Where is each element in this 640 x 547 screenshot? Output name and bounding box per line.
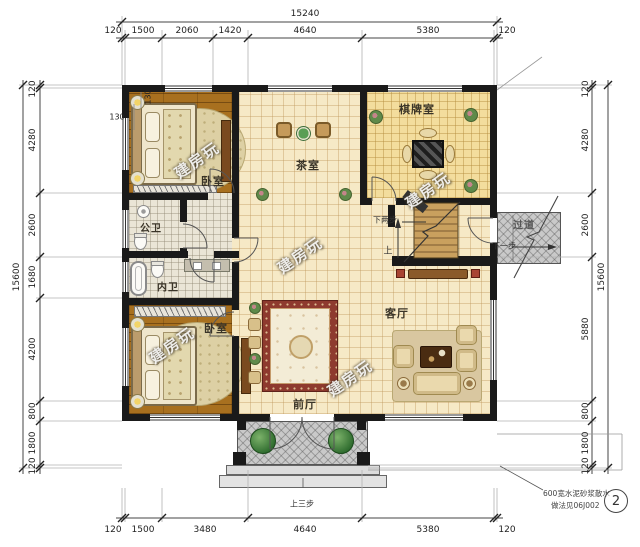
bathtub-inner xyxy=(135,266,142,291)
nightstand-lamp xyxy=(130,394,145,409)
label-tea-room: 茶室 xyxy=(296,157,320,173)
dim-left-seg: 1680 xyxy=(28,266,38,289)
hall-stool xyxy=(248,336,261,349)
dim-top-seg: 2060 xyxy=(176,26,199,36)
dim-right-seg: 2600 xyxy=(581,214,591,237)
toilet-tank xyxy=(151,261,164,266)
label-bedroom1: 卧室 xyxy=(201,173,225,189)
armchair xyxy=(393,345,414,368)
dim-right-seg: 4280 xyxy=(581,129,591,152)
vanity-sink xyxy=(193,262,202,270)
hall-stool xyxy=(248,371,261,384)
armchair xyxy=(456,325,477,345)
dim-top-seg: 1420 xyxy=(219,26,242,36)
pillow xyxy=(145,148,160,178)
porch-step-1 xyxy=(226,465,380,475)
dim-bottom-seg: 120 xyxy=(104,525,121,535)
dim-right-seg: 120 xyxy=(581,457,591,474)
hall-stool xyxy=(248,318,261,331)
game-room-chair xyxy=(419,128,437,138)
dim-left-seg: 1800 xyxy=(28,432,38,455)
tea-room-chair xyxy=(276,122,292,138)
dim-top-seg: 120 xyxy=(104,26,121,36)
bedroom2-closet xyxy=(134,306,226,317)
porch-step-2 xyxy=(219,475,387,488)
label-public-bath: 公卫 xyxy=(140,220,162,235)
dim-right-seg: 5880 xyxy=(581,318,591,341)
public-bath-sink xyxy=(137,205,150,218)
label-up: 上 xyxy=(383,244,392,257)
potted-plant xyxy=(256,188,269,201)
label-bedroom2: 卧室 xyxy=(204,320,228,336)
tea-room-chair xyxy=(315,122,331,138)
pillow xyxy=(145,370,160,400)
ensuite-bathtub xyxy=(130,261,147,296)
detail-reference-bubble: 2 xyxy=(604,489,628,513)
rug-medallion xyxy=(289,335,313,359)
potted-plant xyxy=(249,302,261,314)
label-living-room: 客厅 xyxy=(385,305,409,321)
stair-console-table xyxy=(408,269,468,279)
dim-bottom-seg: 3480 xyxy=(194,525,217,535)
nightstand-lamp xyxy=(130,171,145,186)
nightstand-lamp xyxy=(130,317,145,332)
coffee-table xyxy=(420,346,452,368)
dim-bottom-seg: 4640 xyxy=(294,525,317,535)
label-down-one-step: 下一步 xyxy=(492,241,516,252)
game-room-table xyxy=(412,140,444,168)
public-bath-toilet xyxy=(134,233,147,250)
label-game-room: 棋牌室 xyxy=(399,101,435,117)
dim-top-seg: 4640 xyxy=(294,26,317,36)
dim-top-seg: 5380 xyxy=(417,26,440,36)
armchair xyxy=(456,349,477,372)
dim-top-total: 15240 xyxy=(291,9,320,19)
label-corridor: 过道 xyxy=(513,217,535,232)
potted-plant xyxy=(464,108,478,122)
dim-left-seg: 4280 xyxy=(28,129,38,152)
porch-bush xyxy=(328,428,354,454)
dim-top-seg: 1500 xyxy=(132,26,155,36)
dim-bottom-seg: 120 xyxy=(498,525,515,535)
ensuite-vanity xyxy=(184,259,230,272)
front-hall-rug xyxy=(262,300,338,392)
dim-top-seg: 120 xyxy=(498,26,515,36)
potted-plant xyxy=(464,179,478,193)
side-table xyxy=(397,377,410,390)
note-apron-spec: 600宽水泥砂浆散水 xyxy=(543,488,610,499)
sofa xyxy=(413,372,461,395)
label-front-hall: 前厅 xyxy=(293,396,317,412)
dim-bottom-seg: 1500 xyxy=(132,525,155,535)
potted-plant xyxy=(369,110,383,124)
dim-right-seg: 120 xyxy=(581,80,591,97)
label-up-three-steps: 上三步 xyxy=(290,499,314,510)
dim-right-total: 15600 xyxy=(597,263,607,292)
red-stool xyxy=(396,269,405,278)
dim-right-seg: 1800 xyxy=(581,432,591,455)
dim-offset-130-v: 130 xyxy=(144,89,153,104)
potted-plant xyxy=(249,353,261,365)
dim-left-seg: 120 xyxy=(28,80,38,97)
dim-left-seg: 800 xyxy=(28,402,38,419)
label-ensuite-bath: 内卫 xyxy=(157,279,179,294)
ensuite-toilet xyxy=(151,261,164,278)
dim-right-seg: 800 xyxy=(581,402,591,419)
potted-plant xyxy=(339,188,352,201)
pillow xyxy=(145,112,160,142)
dim-left-seg: 2600 xyxy=(28,214,38,237)
dim-bottom-seg: 5380 xyxy=(417,525,440,535)
game-room-chair xyxy=(402,145,412,163)
red-stool xyxy=(471,269,480,278)
vanity-sink xyxy=(212,262,221,270)
tea-room-table xyxy=(296,126,311,141)
game-room-chair xyxy=(445,145,455,163)
dim-left-seg: 120 xyxy=(28,457,38,474)
dim-left-total: 15600 xyxy=(12,263,22,292)
dim-offset-130-h: 130 xyxy=(109,113,124,122)
side-table xyxy=(463,377,476,390)
label-down-two-steps: 下两步 xyxy=(373,215,397,226)
porch-bush xyxy=(250,428,276,454)
bed-headboard xyxy=(133,328,142,404)
note-apron-ref: 做法见06J002 xyxy=(551,500,600,511)
dim-left-seg: 4200 xyxy=(28,338,38,361)
floor-plan: 15240 120 1500 2060 1420 4640 5380 120 1… xyxy=(0,0,640,547)
